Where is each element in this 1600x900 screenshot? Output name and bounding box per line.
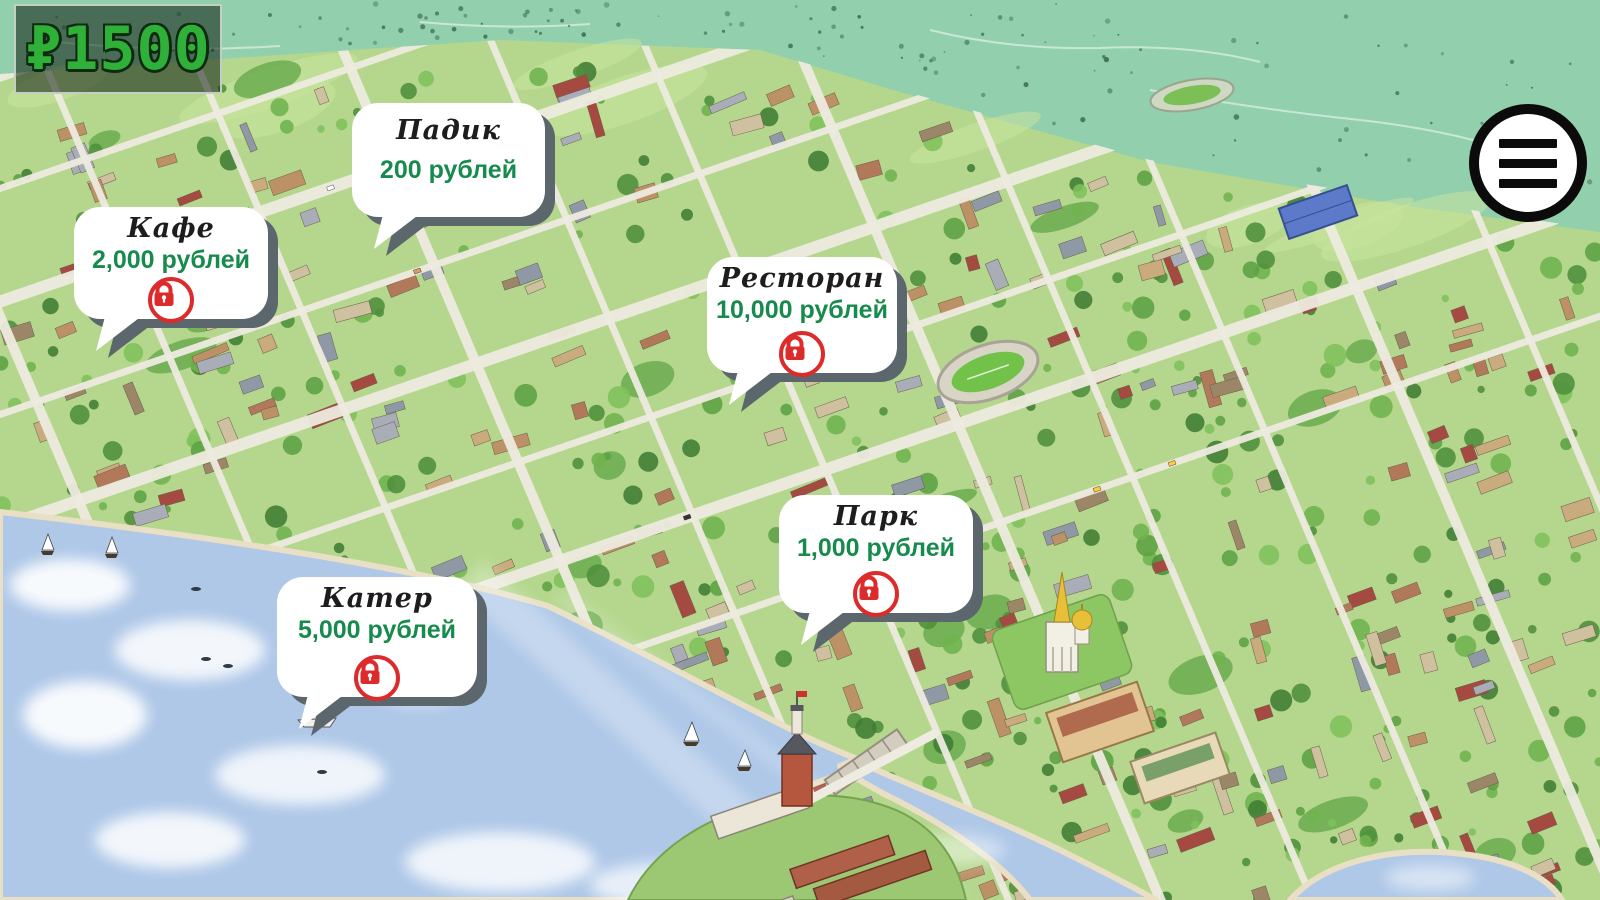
game-screen: ₽1500 Падик 200 рублей Кафе 2,000 рублей xyxy=(0,0,1600,900)
marker-bubble: Ресторан 10,000 рублей xyxy=(707,257,897,373)
marker-bubble: Кафе 2,000 рублей xyxy=(74,207,268,319)
marker-title: Падик xyxy=(396,115,501,147)
marker-title: Парк xyxy=(834,501,918,533)
marker-bubble: Падик 200 рублей xyxy=(352,103,545,217)
marker-title: Катер xyxy=(321,583,433,615)
marker-price: 2,000 рублей xyxy=(92,245,250,275)
marker-price: 200 рублей xyxy=(380,155,517,185)
marker-bubble: Парк 1,000 рублей xyxy=(779,495,973,613)
marker-title: Ресторан xyxy=(720,263,885,295)
marker-title: Кафе xyxy=(127,213,215,245)
marker-kater[interactable]: Катер 5,000 рублей xyxy=(277,577,477,697)
balance-value: ₽1500 xyxy=(25,14,211,84)
marker-restoran[interactable]: Ресторан 10,000 рублей xyxy=(707,257,897,373)
lock-icon xyxy=(148,277,194,323)
menu-button[interactable] xyxy=(1469,104,1587,222)
balance-display: ₽1500 xyxy=(14,4,222,94)
lock-icon xyxy=(779,331,825,377)
lock-icon xyxy=(853,571,899,617)
city-map xyxy=(0,0,1600,900)
marker-price: 5,000 рублей xyxy=(298,615,456,645)
marker-padik[interactable]: Падик 200 рублей xyxy=(352,103,545,217)
marker-park[interactable]: Парк 1,000 рублей xyxy=(779,495,973,613)
marker-price: 10,000 рублей xyxy=(716,295,888,325)
marker-price: 1,000 рублей xyxy=(797,533,955,563)
marker-bubble: Катер 5,000 рублей xyxy=(277,577,477,697)
lock-icon xyxy=(354,655,400,701)
marker-kafe[interactable]: Кафе 2,000 рублей xyxy=(74,207,268,319)
